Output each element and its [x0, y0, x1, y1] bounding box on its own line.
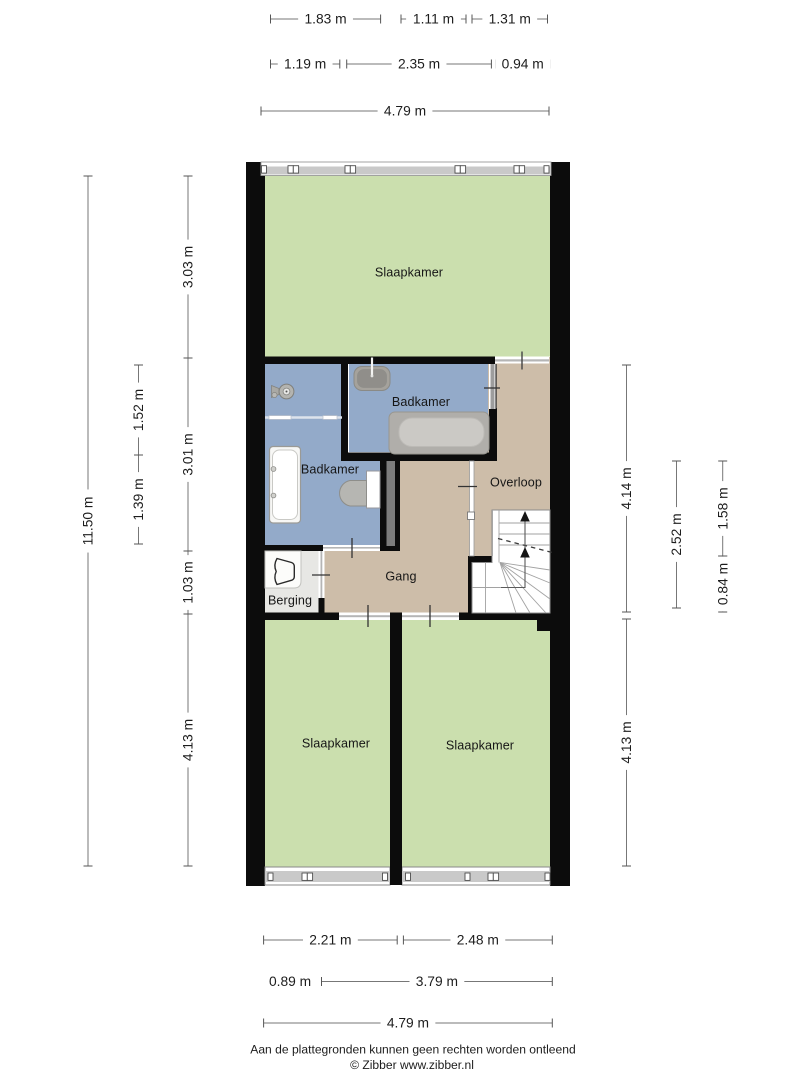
svg-text:Gang: Gang — [385, 570, 416, 584]
svg-text:Badkamer: Badkamer — [392, 395, 450, 409]
svg-text:Berging: Berging — [268, 594, 312, 608]
svg-text:0.94 m: 0.94 m — [502, 57, 544, 72]
svg-text:11.50 m: 11.50 m — [81, 497, 96, 546]
svg-text:1.83 m: 1.83 m — [304, 12, 346, 27]
svg-text:Slaapkamer: Slaapkamer — [302, 737, 370, 751]
svg-text:Aan de plattegronden kunnen ge: Aan de plattegronden kunnen geen rechten… — [250, 1043, 575, 1057]
svg-text:1.31 m: 1.31 m — [489, 12, 531, 27]
svg-text:Badkamer: Badkamer — [301, 463, 359, 477]
svg-text:Overloop: Overloop — [490, 476, 542, 490]
svg-text:Slaapkamer: Slaapkamer — [446, 739, 514, 753]
svg-text:Slaapkamer: Slaapkamer — [375, 266, 443, 280]
svg-text:3.03 m: 3.03 m — [181, 246, 196, 288]
svg-text:1.03 m: 1.03 m — [181, 561, 196, 603]
svg-text:2.48 m: 2.48 m — [457, 933, 499, 948]
svg-text:4.13 m: 4.13 m — [619, 721, 634, 763]
svg-text:0.89 m: 0.89 m — [269, 974, 311, 989]
svg-text:2.35 m: 2.35 m — [398, 57, 440, 72]
svg-text:2.52 m: 2.52 m — [669, 513, 684, 555]
svg-text:1.58 m: 1.58 m — [715, 487, 730, 529]
svg-text:4.14 m: 4.14 m — [619, 467, 634, 509]
svg-text:© Zibber www.zibber.nl: © Zibber www.zibber.nl — [350, 1058, 474, 1072]
svg-text:3.79 m: 3.79 m — [416, 974, 458, 989]
svg-text:1.52 m: 1.52 m — [131, 389, 146, 431]
svg-text:1.11 m: 1.11 m — [413, 12, 454, 27]
svg-text:4.79 m: 4.79 m — [387, 1016, 429, 1031]
svg-text:0.84 m: 0.84 m — [715, 563, 730, 605]
svg-text:4.13 m: 4.13 m — [181, 719, 196, 761]
svg-text:1.19 m: 1.19 m — [284, 57, 326, 72]
svg-text:3.01 m: 3.01 m — [181, 433, 196, 475]
svg-text:2.21 m: 2.21 m — [309, 933, 351, 948]
svg-text:1.39 m: 1.39 m — [131, 478, 146, 520]
svg-text:4.79 m: 4.79 m — [384, 104, 426, 119]
